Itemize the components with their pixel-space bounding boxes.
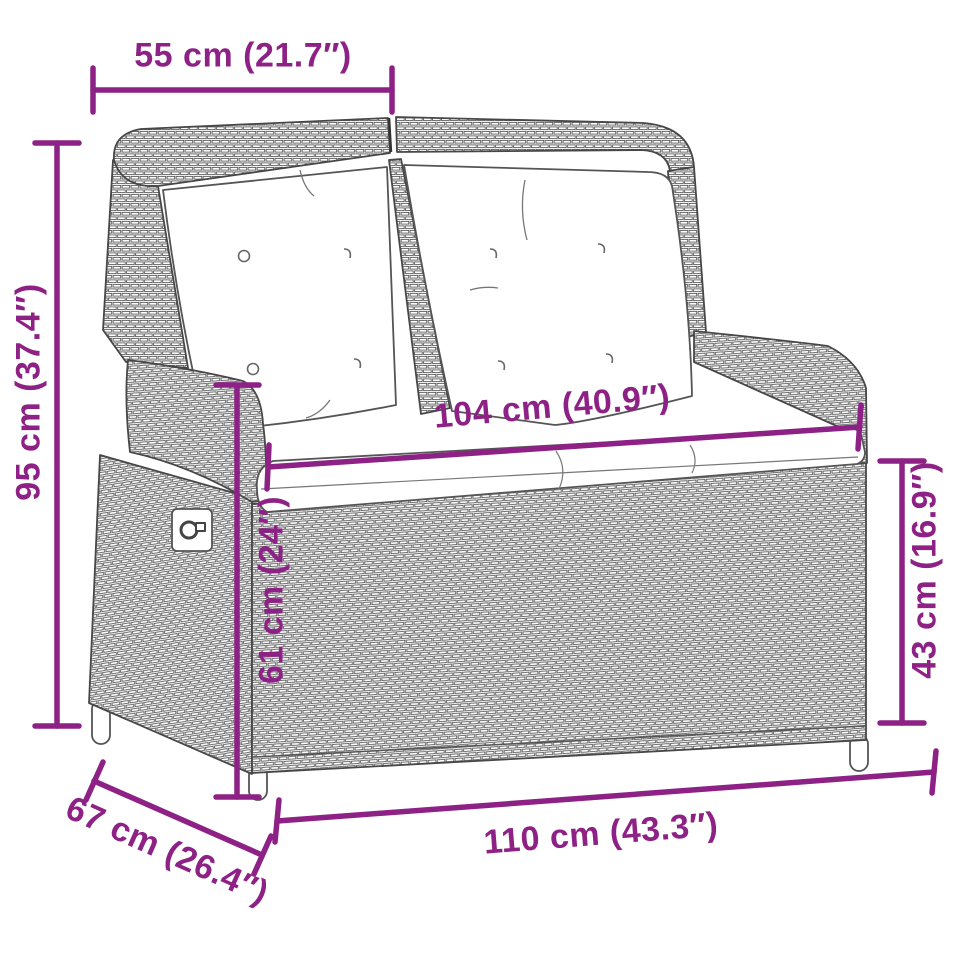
bench-line-art: [0, 0, 955, 955]
recline-knob: [172, 509, 212, 551]
bench-side-panel: [89, 455, 252, 774]
dimension-diagram: 55 cm (21.7″) 95 cm (37.4″) 104 cm (40.9…: [0, 0, 955, 955]
bench-front-panel: [252, 462, 866, 773]
dim-overall-height-label: 95 cm (37.4″): [10, 283, 49, 500]
dim-seat-height-label: 43 cm (16.9″): [906, 461, 945, 678]
dim-top-back-width-label: 55 cm (21.7″): [134, 37, 351, 76]
bench-back-rail-right: [396, 117, 694, 171]
dim-backrest-height-label: 61 cm (24″): [253, 496, 292, 684]
